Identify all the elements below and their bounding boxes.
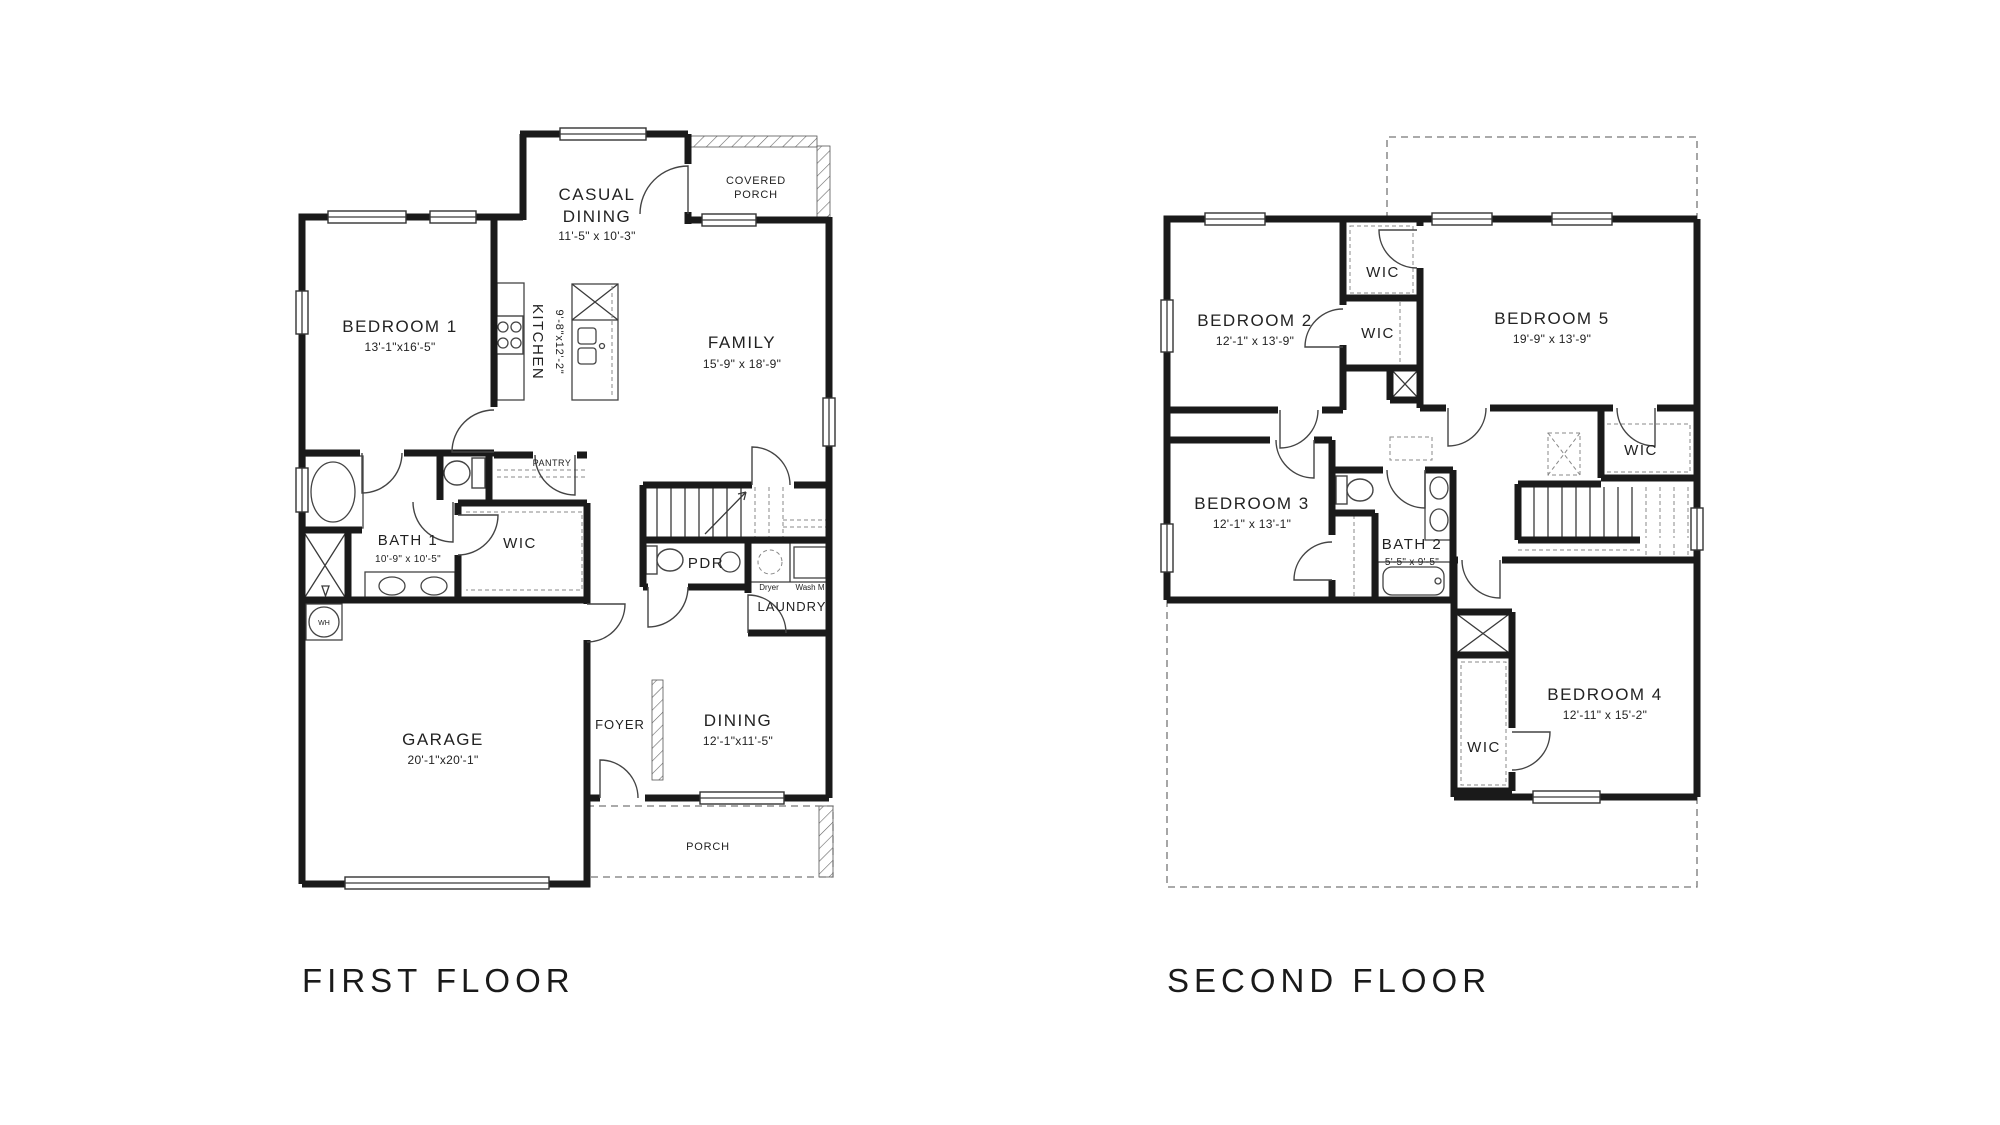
sink-icon xyxy=(379,577,405,595)
room-dims-casual-dining: 11'-5" x 10'-3" xyxy=(558,229,635,243)
door-arc xyxy=(1280,410,1318,448)
stair-direction-arrow xyxy=(705,492,746,534)
room-label-bedroom5: BEDROOM 5 xyxy=(1494,309,1610,328)
stairs-second-floor xyxy=(1518,487,1688,558)
vanity-counter xyxy=(1425,472,1453,540)
room-label-bath2: BATH 2 xyxy=(1382,536,1442,553)
room-label-bedroom2: BEDROOM 2 xyxy=(1197,311,1313,330)
stair-treads xyxy=(1520,487,1632,538)
room-label-wic-hall: WIC xyxy=(1624,442,1658,459)
room-dims-garage: 20'-1"x20'-1" xyxy=(407,753,478,767)
toilet-tank xyxy=(646,546,657,574)
appliance-label-washer: Wash M xyxy=(795,583,824,592)
room-label-bedroom1: BEDROOM 1 xyxy=(342,317,458,336)
sink-basin xyxy=(578,348,596,364)
room-label-pdr: PDR xyxy=(688,555,724,572)
porch-hatch-right xyxy=(819,806,833,877)
room-label-covered-porch-1: COVERED xyxy=(726,175,786,187)
wic-shelves xyxy=(1350,226,1413,293)
room-label-bedroom3: BEDROOM 3 xyxy=(1194,494,1310,513)
room-label-foyer: FOYER xyxy=(595,717,645,732)
room-dims-bedroom5: 19'-9" x 13'-9" xyxy=(1513,332,1591,346)
water-heater-label: WH xyxy=(318,620,330,627)
room-label-covered-porch-2: PORCH xyxy=(734,189,778,201)
floor-plan-image: CASUAL DINING 11'-5" x 10'-3" COVERED PO… xyxy=(0,0,2000,1125)
toilet-tank xyxy=(472,458,485,488)
linen-closet-icon xyxy=(1390,368,1420,400)
room-dims-bedroom2: 12'-1" x 13'-9" xyxy=(1216,334,1294,348)
room-dims-bedroom3: 12'-1" x 13'-1" xyxy=(1213,517,1291,531)
room-dims-bath1: 10'-9" x 10'-5" xyxy=(375,554,441,565)
room-label-laundry: LAUNDRY xyxy=(758,599,827,614)
toilet-icon xyxy=(444,461,470,485)
sink-icon xyxy=(1430,509,1448,531)
door-arc xyxy=(1462,560,1500,598)
sink-icon xyxy=(1430,477,1448,499)
room-label-casual-dining-2: DINING xyxy=(563,207,632,226)
room-label-pantry: PANTRY xyxy=(533,458,572,468)
room-label-wic-bedroom5: WIC xyxy=(1366,264,1400,281)
door-arc xyxy=(1294,542,1332,580)
linen-closet-icon xyxy=(1454,612,1512,655)
room-label-wic-bedroom4: WIC xyxy=(1467,739,1501,756)
sink-basin xyxy=(578,328,596,344)
stair-treads-dashed xyxy=(755,487,830,538)
wic-shelves xyxy=(1461,662,1506,785)
floor-plan-page: CASUAL DINING 11'-5" x 10'-3" COVERED PO… xyxy=(0,0,2000,1125)
room-dims-dining: 12'-1"x11'-5" xyxy=(703,734,773,748)
cabinet-icon xyxy=(572,284,618,320)
drain-icon xyxy=(1435,578,1441,584)
room-label-dining: DINING xyxy=(704,711,773,730)
second-floor-labels: BEDROOM 2 12'-1" x 13'-9" WIC WIC BEDROO… xyxy=(1194,264,1663,756)
room-label-porch: PORCH xyxy=(686,841,730,853)
toilet-icon xyxy=(657,549,683,571)
second-floor-title: SECOND FLOOR xyxy=(1167,962,1491,999)
covered-porch-hatch-right xyxy=(817,146,830,220)
second-floor-plan: BEDROOM 2 12'-1" x 13'-9" WIC WIC BEDROO… xyxy=(1161,137,1703,999)
door-arc xyxy=(648,587,688,627)
door-arc xyxy=(458,515,498,555)
door-arc xyxy=(1448,408,1486,446)
tub-deck xyxy=(305,456,363,528)
front-door-arc xyxy=(600,760,638,798)
first-floor-plan: CASUAL DINING 11'-5" x 10'-3" COVERED PO… xyxy=(296,128,835,999)
door-arc xyxy=(362,453,402,493)
faucet-icon xyxy=(600,344,605,349)
room-label-kitchen: KITCHEN xyxy=(529,304,546,380)
appliance-label-dryer: Dryer xyxy=(759,583,779,592)
toilet-icon xyxy=(1347,479,1373,501)
shower-icon xyxy=(305,534,345,597)
stair-treads-dashed xyxy=(1518,487,1688,558)
first-floor-labels: CASUAL DINING 11'-5" x 10'-3" COVERED PO… xyxy=(318,175,826,853)
dryer-icon xyxy=(758,550,782,574)
tub-icon xyxy=(311,462,355,522)
room-label-family: FAMILY xyxy=(708,333,776,352)
door-arc xyxy=(1387,470,1425,508)
exterior-walls xyxy=(302,134,829,884)
room-dims-kitchen: 9'-8"x12'-2" xyxy=(553,309,565,374)
hatch-areas xyxy=(652,136,833,877)
first-floor-title: FIRST FLOOR xyxy=(302,962,575,999)
covered-porch-hatch-top xyxy=(689,136,817,147)
room-label-garage: GARAGE xyxy=(402,730,484,749)
room-label-wic-bedroom2: WIC xyxy=(1361,325,1395,342)
sink-icon xyxy=(421,577,447,595)
door-arc xyxy=(452,410,494,452)
stove xyxy=(495,316,523,354)
room-label-casual-dining-1: CASUAL xyxy=(558,185,635,204)
attic-access-panel xyxy=(1390,437,1432,460)
door-arc xyxy=(1617,408,1655,446)
room-label-bath1: BATH 1 xyxy=(378,532,438,549)
room-dims-bedroom1: 13'-1"x16'-5" xyxy=(364,340,435,354)
foyer-dining-wall-hatch xyxy=(652,680,663,780)
attic-access-icon xyxy=(1548,433,1580,475)
door-arc xyxy=(752,447,790,485)
door-arc xyxy=(1512,732,1550,770)
room-dims-bedroom4: 12'-11" x 15'-2" xyxy=(1563,708,1647,722)
stairs-first-floor xyxy=(643,487,830,538)
room-label-bedroom4: BEDROOM 4 xyxy=(1547,685,1663,704)
room-dims-family: 15'-9" x 18'-9" xyxy=(703,357,781,371)
washer-icon xyxy=(794,547,826,578)
door-arc xyxy=(1379,230,1417,268)
garage-door-arc xyxy=(587,604,625,642)
room-dims-bath2: 5'-5" x 9'-5" xyxy=(1385,557,1439,568)
door-arc xyxy=(640,166,688,214)
room-label-wic: WIC xyxy=(503,535,537,552)
toilet-tank xyxy=(1336,476,1347,504)
